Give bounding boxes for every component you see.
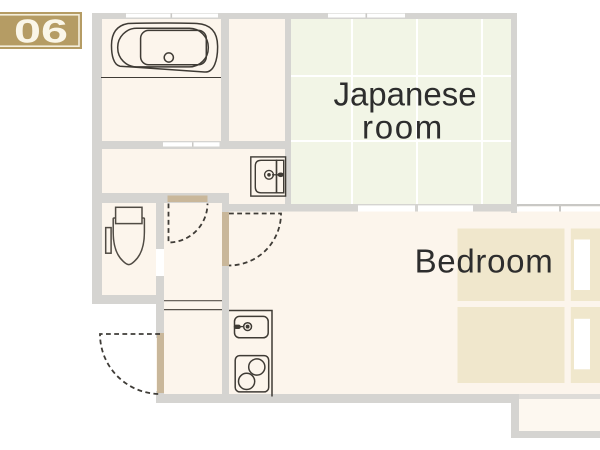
svg-text:room: room: [362, 109, 444, 146]
svg-text:Japanese: Japanese: [333, 76, 476, 113]
svg-text:Bedroom: Bedroom: [415, 243, 554, 280]
svg-text:06: 06: [14, 12, 68, 49]
